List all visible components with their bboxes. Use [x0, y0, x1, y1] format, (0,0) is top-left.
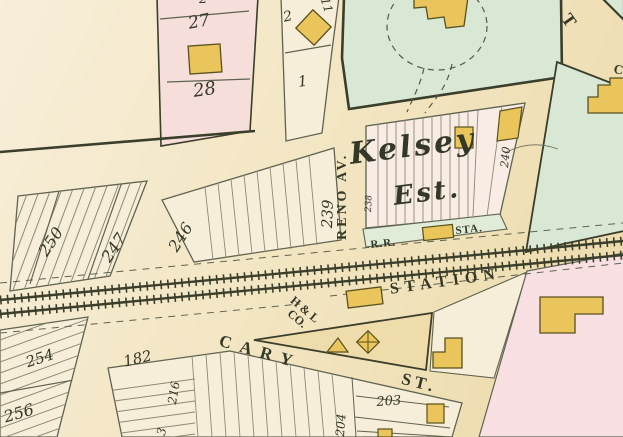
lot-number-28: 28	[192, 80, 217, 101]
building-station	[346, 287, 383, 308]
lot-number-239: 239	[320, 199, 336, 228]
lot-number-27: 27	[187, 12, 211, 32]
building-lot-203-south	[378, 429, 392, 437]
building-kelsey-east	[497, 107, 522, 141]
lot-number-1: 1	[297, 74, 309, 90]
lot-number-240: 240	[499, 146, 512, 168]
lot-number-203: 203	[376, 394, 402, 409]
map-canvas: Kelsey Est. RENO AV. STATION CARY ST. T …	[0, 0, 623, 437]
street-label-reno-av: RENO AV.	[336, 153, 350, 240]
building-lot-203	[427, 404, 444, 423]
lot-number-238: 238	[365, 195, 375, 212]
building-rr-station	[422, 224, 453, 240]
map-geometry	[0, 0, 623, 437]
lot-number-216: 216	[166, 380, 182, 405]
lot-number-partial-sliver: 2	[199, 0, 207, 6]
lot-number-204: 204	[334, 413, 348, 437]
street-boundary-line	[0, 131, 255, 152]
street-label-c-partial: C	[613, 62, 623, 76]
estate-name-line2: Est.	[392, 176, 462, 210]
parcel-green-corner	[601, 0, 623, 20]
building-lot-27	[188, 44, 222, 74]
parcel-block-250-247	[10, 181, 147, 291]
